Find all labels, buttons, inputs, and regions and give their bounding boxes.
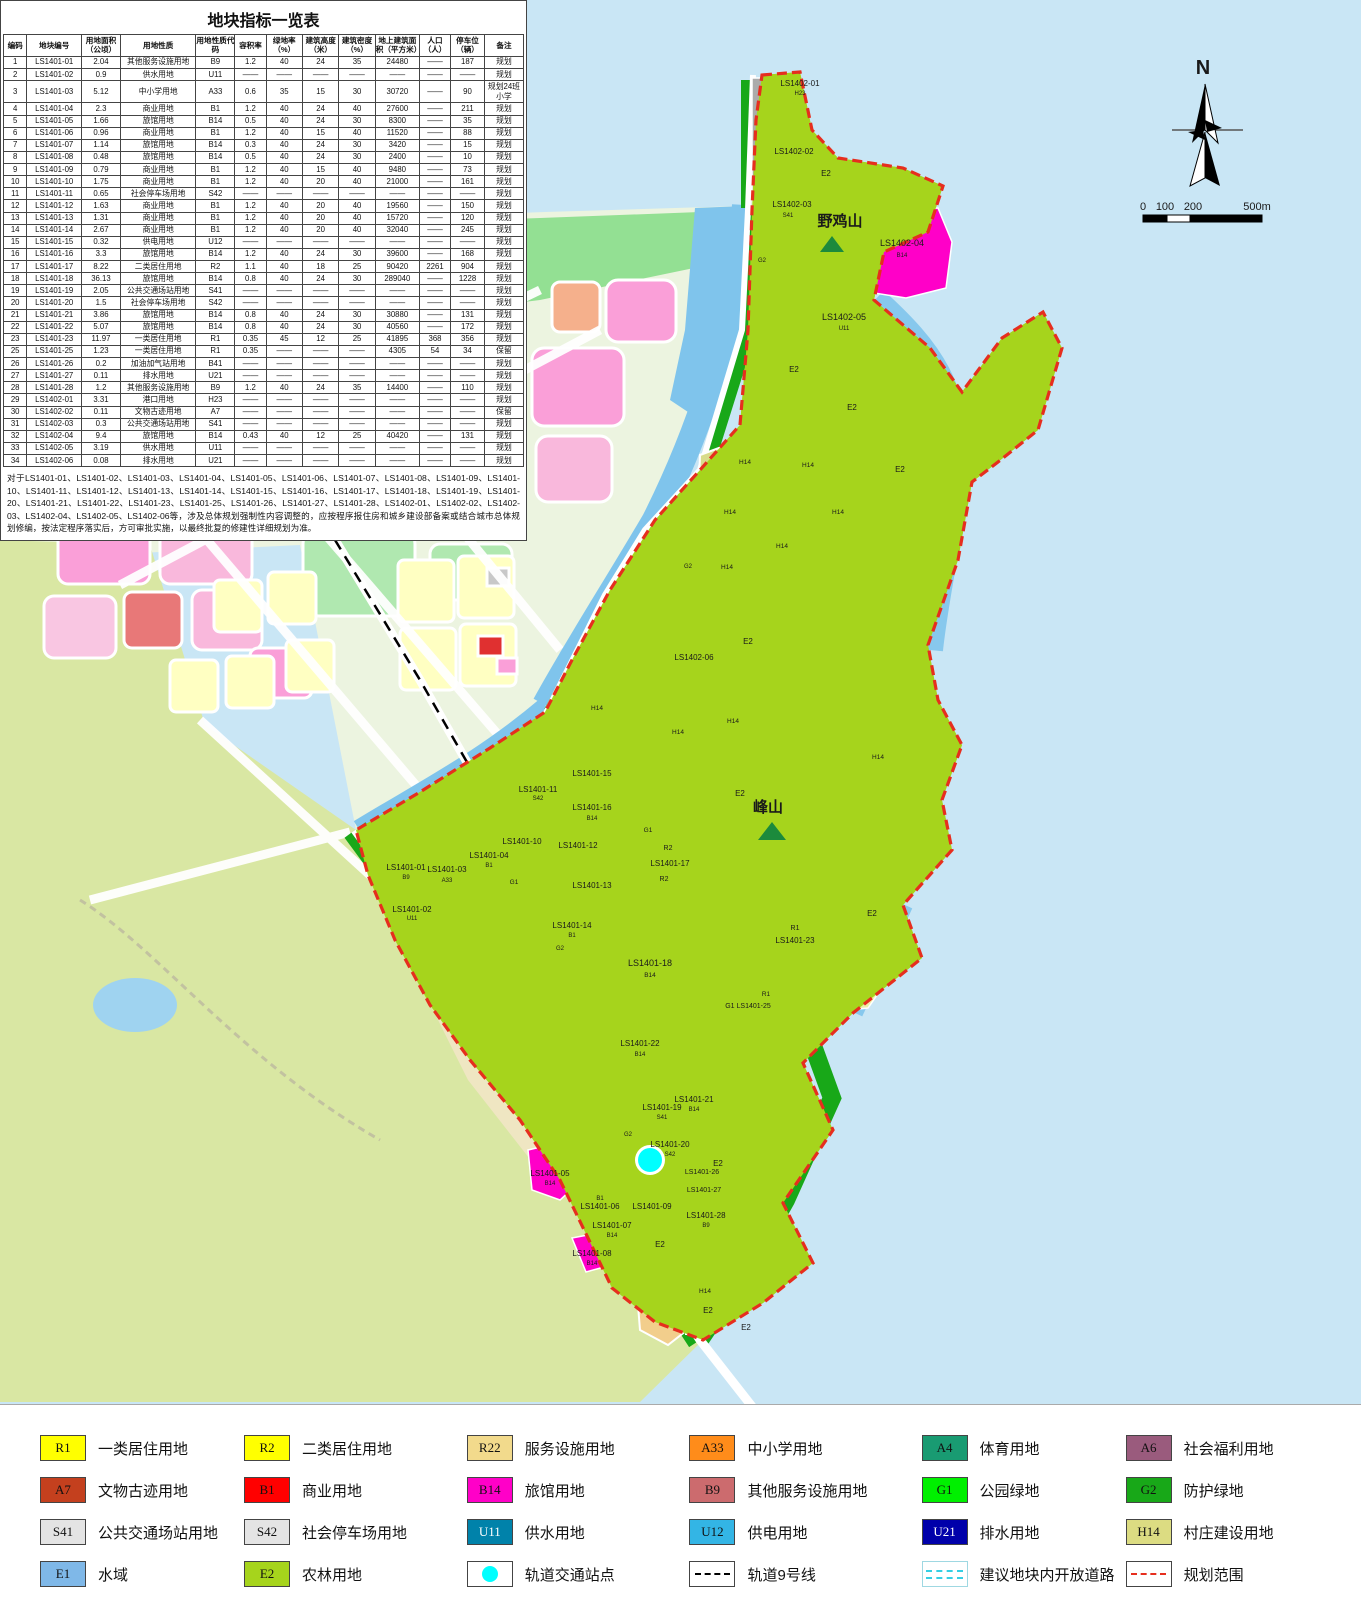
table-cell: ——	[266, 188, 302, 200]
table-cell: ——	[266, 442, 302, 454]
legend-label: 二类居住用地	[302, 1438, 392, 1459]
table-cell: ——	[451, 358, 485, 370]
table-cell: 168	[451, 248, 485, 260]
table-cell: ——	[339, 455, 375, 467]
table-cell: ——	[419, 69, 450, 81]
table-row: 11LS1401-110.65社会停车场用地S42——————————————规…	[4, 188, 524, 200]
table-row: 33LS1402-053.19供水用地U11——————————————规划	[4, 442, 524, 454]
table-cell: 30720	[375, 81, 419, 103]
legend-item: 轨道9号线	[689, 1555, 913, 1593]
column-header: 备注	[484, 35, 523, 57]
table-cell: 30	[4, 406, 27, 418]
table-cell: 规划	[484, 248, 523, 260]
table-cell: LS1401-21	[27, 309, 82, 321]
map-label: 500m	[1243, 201, 1271, 213]
table-cell: 5.07	[81, 321, 120, 333]
table-cell: LS1401-26	[27, 358, 82, 370]
column-header: 建筑密度（%）	[339, 35, 375, 57]
table-row: 6LS1401-060.96商业用地B11.240154011520——88规划	[4, 127, 524, 139]
table-row: 12LS1401-121.63商业用地B11.240204019560——150…	[4, 200, 524, 212]
table-cell: 0.3	[235, 139, 266, 151]
table-cell: H23	[196, 394, 235, 406]
table-cell: ——	[266, 345, 302, 357]
map-label: H14	[721, 564, 733, 571]
table-cell: B1	[196, 103, 235, 115]
table-cell: 90	[451, 81, 485, 103]
map-label: LS1401-19	[642, 1103, 682, 1112]
table-cell: LS1401-13	[27, 212, 82, 224]
table-cell: 规划	[484, 176, 523, 188]
legend-item: 轨道交通站点	[467, 1555, 682, 1593]
table-cell: ——	[419, 382, 450, 394]
table-cell: R1	[196, 333, 235, 345]
table-cell: 1.1	[235, 261, 266, 273]
table-cell: ——	[266, 358, 302, 370]
table-cell: 4	[4, 103, 27, 115]
table-cell: 11	[4, 188, 27, 200]
table-cell: ——	[339, 370, 375, 382]
table-cell: 排水用地	[120, 455, 195, 467]
table-cell: B9	[196, 382, 235, 394]
table-cell: ——	[339, 285, 375, 297]
table-cell: 40	[339, 224, 375, 236]
map-label: E2	[703, 1306, 713, 1315]
table-cell: B1	[196, 200, 235, 212]
map-label: E2	[655, 1240, 665, 1249]
table-cell: 120	[451, 212, 485, 224]
table-cell: B14	[196, 309, 235, 321]
map-label: B1	[568, 933, 576, 939]
table-cell: ——	[235, 358, 266, 370]
table-cell: 20	[302, 224, 338, 236]
table-cell: ——	[419, 200, 450, 212]
table-cell: LS1401-01	[27, 56, 82, 68]
map-label: H23	[794, 91, 806, 97]
table-cell: 11520	[375, 127, 419, 139]
table-cell: 40	[266, 273, 302, 285]
table-cell: ——	[266, 370, 302, 382]
table-cell: 40	[266, 115, 302, 127]
map-label: LS1401-13	[572, 881, 612, 890]
plot-index-panel: 地块指标一览表 编码地块编号用地面积（公顷）用地性质用地性质代码容积率绿地率（%…	[0, 0, 527, 541]
legend-item: U11供水用地	[467, 1513, 682, 1551]
table-cell: 0.2	[81, 358, 120, 370]
table-cell: 3.3	[81, 248, 120, 260]
map-label: LS1401-16	[572, 803, 612, 812]
table-cell: ——	[375, 394, 419, 406]
table-cell: ——	[419, 394, 450, 406]
map-label: E2	[741, 1323, 751, 1332]
legend-item: U12供电用地	[689, 1513, 913, 1551]
map-label: S42	[665, 1152, 676, 1158]
table-cell: 7	[4, 139, 27, 151]
table-cell: 3.19	[81, 442, 120, 454]
table-cell: 23	[4, 333, 27, 345]
table-cell: 40	[266, 224, 302, 236]
table-cell: 规划	[484, 115, 523, 127]
table-cell: 5.12	[81, 81, 120, 103]
table-row: 27LS1401-270.11排水用地U21——————————————规划	[4, 370, 524, 382]
map-label: G2	[758, 258, 767, 264]
table-cell: LS1402-05	[27, 442, 82, 454]
table-cell: 2.67	[81, 224, 120, 236]
table-cell: 旅馆用地	[120, 309, 195, 321]
legend-label: 农林用地	[302, 1564, 362, 1585]
table-cell: 0.43	[235, 430, 266, 442]
legend-label: 规划范围	[1184, 1564, 1244, 1585]
table-cell: 32	[4, 430, 27, 442]
table-cell: 904	[451, 261, 485, 273]
table-cell: ——	[339, 69, 375, 81]
map-label: E2	[713, 1159, 723, 1168]
map-label: H14	[776, 543, 788, 550]
table-cell: 36.13	[81, 273, 120, 285]
map-label: B1	[485, 863, 493, 869]
map-label: H14	[699, 1288, 711, 1295]
table-cell: 文物古迹用地	[120, 406, 195, 418]
table-cell: ——	[302, 358, 338, 370]
table-cell: 40	[266, 261, 302, 273]
table-cell: 1.14	[81, 139, 120, 151]
table-cell: ——	[451, 188, 485, 200]
table-cell: 3	[4, 81, 27, 103]
table-cell: 供水用地	[120, 442, 195, 454]
table-cell: 8.22	[81, 261, 120, 273]
table-row: 34LS1402-060.08排水用地U21——————————————规划	[4, 455, 524, 467]
table-cell: 2.05	[81, 285, 120, 297]
map-label: H14	[727, 718, 739, 725]
table-cell: LS1401-05	[27, 115, 82, 127]
table-cell: 5	[4, 115, 27, 127]
map-label: E2	[847, 403, 857, 412]
table-row: 18LS1401-1836.13旅馆用地B140.8402430289040——…	[4, 273, 524, 285]
map-label: G2	[684, 564, 693, 570]
table-cell: 24	[302, 382, 338, 394]
table-cell: 规划	[484, 297, 523, 309]
column-header: 用地面积（公顷）	[81, 35, 120, 57]
table-row: 8LS1401-080.48旅馆用地B140.54024302400——10规划	[4, 151, 524, 163]
map-label: LS1401-01	[386, 863, 426, 872]
table-cell: ——	[451, 394, 485, 406]
legend-swatch: A33	[689, 1435, 735, 1461]
map-label: B9	[702, 1223, 710, 1229]
table-cell: A33	[196, 81, 235, 103]
table-cell: 22	[4, 321, 27, 333]
table-row: 17LS1401-178.22二类居住用地R21.140182590420226…	[4, 261, 524, 273]
legend-swatch: B14	[467, 1477, 513, 1503]
metro-station-icon	[467, 1561, 513, 1587]
map-label: LS1401-07	[592, 1221, 632, 1230]
table-cell: 15720	[375, 212, 419, 224]
table-cell: 40	[339, 212, 375, 224]
table-cell: ——	[266, 69, 302, 81]
table-cell: 旅馆用地	[120, 151, 195, 163]
table-cell: ——	[419, 224, 450, 236]
table-cell: 港口用地	[120, 394, 195, 406]
legend-label: 旅馆用地	[525, 1480, 585, 1501]
legend-swatch: E1	[40, 1561, 86, 1587]
table-cell: 一类居住用地	[120, 345, 195, 357]
table-cell: 旅馆用地	[120, 430, 195, 442]
table-cell: 1.23	[81, 345, 120, 357]
table-cell: 1.2	[81, 382, 120, 394]
table-cell: B14	[196, 139, 235, 151]
table-cell: 35	[266, 81, 302, 103]
map-label: B14	[545, 1181, 556, 1187]
table-cell: 3.31	[81, 394, 120, 406]
table-cell: ——	[302, 418, 338, 430]
map-label: R2	[664, 845, 673, 852]
table-cell: 0.35	[235, 333, 266, 345]
table-row: 23LS1401-2311.97一类居住用地R10.35451225418953…	[4, 333, 524, 345]
table-cell: 8300	[375, 115, 419, 127]
map-label: H14	[672, 729, 684, 736]
table-cell: A7	[196, 406, 235, 418]
table-cell: R1	[196, 345, 235, 357]
table-cell: 旅馆用地	[120, 273, 195, 285]
map-label: LS1401-10	[502, 837, 542, 846]
table-row: 1LS1401-012.04其他服务设施用地B91.240243524480——…	[4, 56, 524, 68]
legend-swatch: G2	[1126, 1477, 1172, 1503]
table-cell: S41	[196, 418, 235, 430]
table-cell: B1	[196, 164, 235, 176]
column-header: 绿地率（%）	[266, 35, 302, 57]
table-cell: 10	[451, 151, 485, 163]
legend-swatch: S42	[244, 1519, 290, 1545]
map-label: LS1401-03	[427, 865, 467, 874]
table-cell: 25	[4, 345, 27, 357]
table-cell: 1.2	[235, 382, 266, 394]
column-header: 用地性质代码	[196, 35, 235, 57]
table-cell: ——	[339, 406, 375, 418]
table-cell: 规划	[484, 358, 523, 370]
table-cell: 26	[4, 358, 27, 370]
table-cell: 1.63	[81, 200, 120, 212]
table-cell: 规划	[484, 139, 523, 151]
table-cell: 17	[4, 261, 27, 273]
table-cell: 供电用地	[120, 236, 195, 248]
legend-label: 建议地块内开放道路	[980, 1564, 1115, 1585]
table-cell: 40	[339, 176, 375, 188]
table-cell: B41	[196, 358, 235, 370]
table-cell: 规划24班小学	[484, 81, 523, 103]
column-header: 编码	[4, 35, 27, 57]
table-cell: 24	[302, 273, 338, 285]
table-cell: ——	[266, 297, 302, 309]
map-label: R2	[660, 876, 669, 883]
map-label: G2	[624, 1132, 633, 1138]
table-cell: 规划	[484, 273, 523, 285]
table-cell: 保留	[484, 345, 523, 357]
table-cell: 27600	[375, 103, 419, 115]
table-cell: 15	[451, 139, 485, 151]
table-cell: 14400	[375, 382, 419, 394]
table-row: 4LS1401-042.3商业用地B11.240244027600——211规划	[4, 103, 524, 115]
map-label: LS1402-05	[822, 312, 866, 322]
legend-swatch: R2	[244, 1435, 290, 1461]
table-cell: 规划	[484, 321, 523, 333]
column-header: 地上建筑面积（平方米）	[375, 35, 419, 57]
legend-label: 村庄建设用地	[1184, 1522, 1274, 1543]
table-cell: 21000	[375, 176, 419, 188]
map-label: LS1401-05	[530, 1169, 570, 1178]
table-cell: 30	[339, 273, 375, 285]
table-cell: 40	[266, 139, 302, 151]
legend-item: G1公园绿地	[922, 1471, 1118, 1509]
table-cell: LS1401-07	[27, 139, 82, 151]
table-cell: 社会停车场用地	[120, 188, 195, 200]
table-row: 13LS1401-131.31商业用地B11.240204015720——120…	[4, 212, 524, 224]
legend-label: 商业用地	[302, 1480, 362, 1501]
table-cell: 30	[339, 139, 375, 151]
table-cell: 30	[339, 81, 375, 103]
table-cell: 商业用地	[120, 164, 195, 176]
map-label: H14	[832, 509, 844, 516]
planning-boundary-icon	[1126, 1561, 1172, 1587]
table-cell: 20	[302, 200, 338, 212]
table-cell: ——	[302, 370, 338, 382]
table-cell: ——	[419, 176, 450, 188]
table-cell: LS1401-12	[27, 200, 82, 212]
legend-item: 建议地块内开放道路	[922, 1555, 1118, 1593]
map-label: H14	[724, 509, 736, 516]
table-cell: 24	[302, 115, 338, 127]
map-label: LS1401-08	[572, 1249, 612, 1258]
table-cell: 6	[4, 127, 27, 139]
legend-item: A7文物古迹用地	[40, 1471, 236, 1509]
map-label: LS1402-04	[880, 238, 924, 248]
table-cell: 规划	[484, 236, 523, 248]
table-holder: 编码地块编号用地面积（公顷）用地性质用地性质代码容积率绿地率（%）建筑高度（米）…	[3, 34, 524, 467]
table-cell: 商业用地	[120, 224, 195, 236]
table-cell: LS1401-27	[27, 370, 82, 382]
table-cell: 1.31	[81, 212, 120, 224]
table-cell: 旅馆用地	[120, 321, 195, 333]
table-cell: LS1402-01	[27, 394, 82, 406]
map-label: S41	[783, 213, 794, 219]
table-cell: 0.5	[235, 115, 266, 127]
map-label: N	[1196, 57, 1210, 79]
table-cell: 289040	[375, 273, 419, 285]
table-cell: 35	[451, 115, 485, 127]
legend-label: 中小学用地	[747, 1438, 822, 1459]
table-cell: B14	[196, 273, 235, 285]
table-cell: ——	[375, 442, 419, 454]
table-cell: 公共交通场站用地	[120, 418, 195, 430]
table-cell: 0.08	[81, 455, 120, 467]
legend-item: B9其他服务设施用地	[689, 1471, 913, 1509]
map-label: E2	[821, 169, 831, 178]
table-cell: 40	[266, 103, 302, 115]
table-row: 30LS1402-020.11文物古迹用地A7——————————————保留	[4, 406, 524, 418]
table-cell: 商业用地	[120, 127, 195, 139]
table-cell: 规划	[484, 261, 523, 273]
table-cell: LS1401-28	[27, 382, 82, 394]
table-row: 2LS1401-020.9供水用地U11——————————————规划	[4, 69, 524, 81]
table-row: 29LS1402-013.31港口用地H23——————————————规划	[4, 394, 524, 406]
map-label: B14	[587, 816, 598, 822]
map-label: 200	[1184, 201, 1202, 213]
table-cell: 21	[4, 309, 27, 321]
table-cell: 10	[4, 176, 27, 188]
table-cell: 15	[302, 127, 338, 139]
table-cell: LS1402-06	[27, 455, 82, 467]
table-cell: ——	[451, 285, 485, 297]
table-cell: 34	[451, 345, 485, 357]
table-cell: B14	[196, 430, 235, 442]
table-cell: 3.86	[81, 309, 120, 321]
table-cell: U12	[196, 236, 235, 248]
table-cell: 45	[266, 333, 302, 345]
legend-item: U21排水用地	[922, 1513, 1118, 1551]
legend-swatch: B1	[244, 1477, 290, 1503]
table-cell: 1	[4, 56, 27, 68]
table-cell: ——	[235, 370, 266, 382]
table-cell: ——	[235, 418, 266, 430]
map-label: B9	[402, 875, 410, 881]
table-cell: ——	[339, 297, 375, 309]
legend-label: 其他服务设施用地	[747, 1480, 867, 1501]
table-cell: ——	[339, 236, 375, 248]
table-cell: ——	[419, 164, 450, 176]
table-cell: 8	[4, 151, 27, 163]
legend-item: S42社会停车场用地	[244, 1513, 459, 1551]
table-cell: 0.11	[81, 406, 120, 418]
table-cell: ——	[302, 188, 338, 200]
table-cell: B1	[196, 176, 235, 188]
table-cell: B14	[196, 115, 235, 127]
table-cell: LS1401-15	[27, 236, 82, 248]
table-cell: ——	[339, 188, 375, 200]
table-cell: B14	[196, 151, 235, 163]
table-cell: LS1402-04	[27, 430, 82, 442]
map-label: G1	[644, 827, 653, 834]
legend-swatch: S41	[40, 1519, 86, 1545]
legend-grid: R1一类居住用地R2二类居住用地R22服务设施用地A33中小学用地A4体育用地A…	[40, 1429, 1331, 1593]
table-cell: R2	[196, 261, 235, 273]
map-label: G1	[510, 879, 519, 886]
table-cell: ——	[419, 115, 450, 127]
table-cell: ——	[302, 69, 338, 81]
table-cell: 0.32	[81, 236, 120, 248]
table-row: 25LS1401-251.23一类居住用地R10.35——————4305543…	[4, 345, 524, 357]
map-label: LS1401-18	[628, 958, 672, 968]
table-cell: ——	[375, 69, 419, 81]
table-cell: 0.8	[235, 321, 266, 333]
table-cell: U11	[196, 69, 235, 81]
table-cell: 0.11	[81, 370, 120, 382]
table-cell: B14	[196, 248, 235, 260]
table-cell: 31	[4, 418, 27, 430]
table-cell: 12	[4, 200, 27, 212]
table-cell: 40	[266, 200, 302, 212]
table-cell: LS1401-16	[27, 248, 82, 260]
legend-item: H14村庄建设用地	[1126, 1513, 1331, 1551]
table-cell: ——	[339, 442, 375, 454]
table-cell: 规划	[484, 200, 523, 212]
map-label: LS1401-09	[632, 1202, 672, 1211]
legend-swatch: U11	[467, 1519, 513, 1545]
table-cell: 40	[266, 248, 302, 260]
map-label: LS1401-15	[572, 769, 612, 778]
table-cell: ——	[375, 236, 419, 248]
table-cell: 0.8	[235, 309, 266, 321]
table-cell: LS1401-22	[27, 321, 82, 333]
table-cell: 245	[451, 224, 485, 236]
table-cell: 24	[302, 139, 338, 151]
table-cell: 14	[4, 224, 27, 236]
table-cell: 规划	[484, 370, 523, 382]
